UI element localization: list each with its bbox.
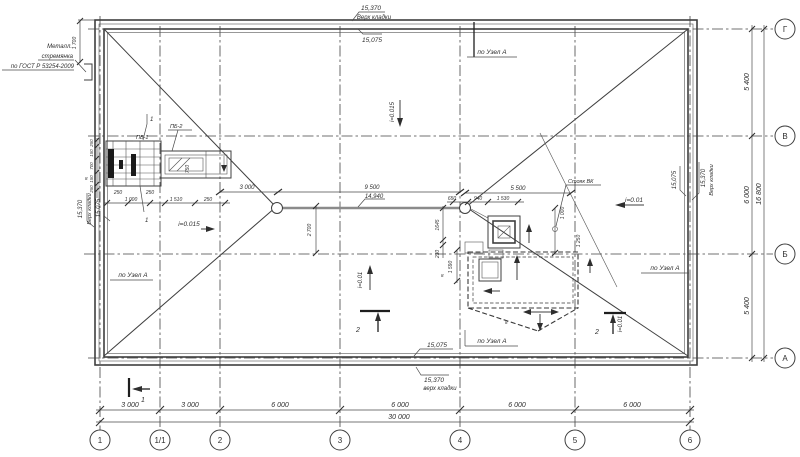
axis-bubbles-bottom: 1 1/1 2 3 4 5 6 — [90, 430, 700, 450]
dim-650: 650 — [448, 196, 457, 202]
axis-4: 4 — [458, 436, 463, 445]
axis-2: 2 — [218, 436, 223, 445]
dim-750: 750 — [185, 165, 191, 174]
detail-dim: 250 — [89, 139, 94, 148]
ladder-note-line1: Металл. — [47, 44, 72, 50]
elev-top-value: 15,370 — [424, 377, 444, 384]
detail-dim: 250 — [89, 185, 94, 194]
plumbing-riser: Стояк ВК 1 000 1 250 — [552, 179, 601, 256]
dim-right-total: 16 800 — [756, 183, 763, 205]
elev-top-label: Верх кладки — [357, 15, 392, 21]
roof-penthouse: 8 8 — [441, 216, 593, 331]
slope-0015: i=0.015 — [390, 101, 396, 122]
axis-v: В — [782, 132, 787, 141]
slope-001: i=0.01 — [618, 316, 624, 333]
note-node-a: по Узел А — [650, 265, 679, 272]
riser-label: Стояк ВК — [568, 179, 594, 185]
elev-roof-value: 15,075 — [362, 37, 382, 44]
elev-roof-value: 15,075 — [672, 170, 678, 189]
dim-bottom-2: 6 000 — [271, 402, 289, 409]
callout-pos1: 1 — [150, 117, 153, 123]
plan-dimensions-center: 3 000 9 500 14,940 5 500 650 940 1 530 1… — [216, 185, 575, 284]
dim-1000: 1 000 — [560, 207, 566, 220]
slope-001: i=0.01 — [358, 272, 364, 289]
slope-0015: i=0.015 — [178, 221, 200, 228]
axis-a: А — [782, 354, 788, 363]
axis-3: 3 — [338, 436, 343, 445]
mark-8: 8 — [441, 273, 444, 278]
roof-hatch-detail: ПБ-1 ПБ-2 1 1 250 1 000 250 1 510 250 25… — [85, 114, 231, 224]
node-a-notes: по Узел А по Узел А по Узел А по Узел А — [110, 22, 689, 346]
dim-bottom-total: 30 000 — [388, 414, 410, 421]
axis-b: Б — [782, 250, 787, 259]
callout-pos1: 1 — [145, 218, 148, 224]
detail-dim: 700 — [89, 162, 94, 170]
elev-top-value: 15,370 — [701, 168, 707, 187]
slope-001: i=0.01 — [625, 197, 643, 204]
axis-5: 5 — [573, 436, 578, 445]
note-node-a: по Узел А — [477, 338, 506, 345]
dim-1645: 1645 — [435, 219, 441, 230]
detail-dim: 250 — [203, 197, 213, 203]
roof-hip-lines — [104, 29, 688, 356]
dim-9500: 9 500 — [364, 185, 380, 191]
roof-plan-drawing: 3 000 9 500 14,940 5 500 650 940 1 530 1… — [0, 0, 800, 457]
detail-dim: 250 — [145, 190, 155, 196]
dim-bottom-5: 6 000 — [623, 402, 641, 409]
mark-8: 8 — [85, 176, 88, 181]
elev-top-label: верх кладки — [423, 386, 457, 392]
drain-funnel-icon — [272, 203, 283, 214]
section-1-label: 1 — [141, 397, 145, 404]
dim-right-1: 6 000 — [744, 186, 751, 204]
elev-top-value: 15,370 — [78, 199, 84, 218]
ladder-note-line2: стремянка — [42, 54, 74, 60]
right-dimension-lines: 5 400 6 000 5 400 16 800 — [744, 25, 767, 362]
axis-bubbles-right: Г В Б А — [775, 19, 795, 368]
dim-1530: 1 530 — [497, 196, 510, 202]
dim-940: 940 — [474, 196, 483, 202]
elev-top-value: 15,370 — [361, 5, 381, 12]
axis-1-1: 1/1 — [154, 436, 166, 445]
detail-dim: 1 000 — [125, 197, 138, 203]
dim-bottom-0: 3 000 — [121, 402, 139, 409]
axis-1: 1 — [98, 436, 103, 445]
bottom-dimension-lines: 3 000 3 000 6 000 6 000 6 000 6 000 30 0… — [96, 402, 694, 426]
dim-1590: 1 590 — [448, 261, 454, 274]
dim-1700: 1 700 — [72, 37, 78, 50]
ladder-note-line3: по ГОСТ Р 53254-2009 — [11, 64, 75, 70]
axis-6: 6 — [688, 436, 693, 445]
note-node-a: по Узел А — [118, 272, 147, 279]
dim-3000: 3 000 — [239, 185, 255, 191]
dim-bottom-1: 3 000 — [181, 402, 199, 409]
elev-top-label: Верх кладки — [709, 164, 715, 195]
ladder-note: Металл. стремянка по ГОСТ Р 53254-2009 1… — [2, 18, 95, 80]
dim-2700: 2 700 — [307, 224, 313, 238]
drain-funnel-icon — [460, 203, 471, 214]
elev-gutter: 14,940 — [365, 194, 384, 200]
callout-pb2: ПБ-2 — [170, 124, 182, 130]
detail-dim: 150 — [89, 149, 94, 157]
roof-gutter — [272, 203, 489, 219]
dim-bottom-3: 6 000 — [391, 402, 409, 409]
elev-roof-value: 15,075 — [427, 342, 447, 349]
note-node-a: по Узел А — [477, 49, 506, 56]
dim-right-2: 5 400 — [744, 297, 751, 315]
detail-dim: 250 — [113, 190, 123, 196]
dim-5500: 5 500 — [510, 186, 526, 192]
dim-230: 230 — [435, 250, 441, 260]
callout-pb1: ПБ-1 — [136, 135, 148, 141]
section-2-label: 2 — [355, 327, 360, 334]
elev-top-label: Верх кладки — [87, 193, 93, 224]
slope-annotations: i=0.015 i=0.015 i=0.01 i=0.01 i=0.01 — [178, 100, 644, 332]
section-2-label: 2 — [594, 329, 599, 336]
elev-roof-value: 15,075 — [96, 198, 102, 217]
detail-dim: 1 510 — [170, 197, 183, 203]
dim-bottom-4: 6 000 — [508, 402, 526, 409]
dim-1250: 1 250 — [576, 235, 582, 248]
axis-g: Г — [783, 25, 788, 34]
detail-dim: 150 — [89, 175, 94, 183]
dim-right-0: 5 400 — [744, 73, 751, 91]
